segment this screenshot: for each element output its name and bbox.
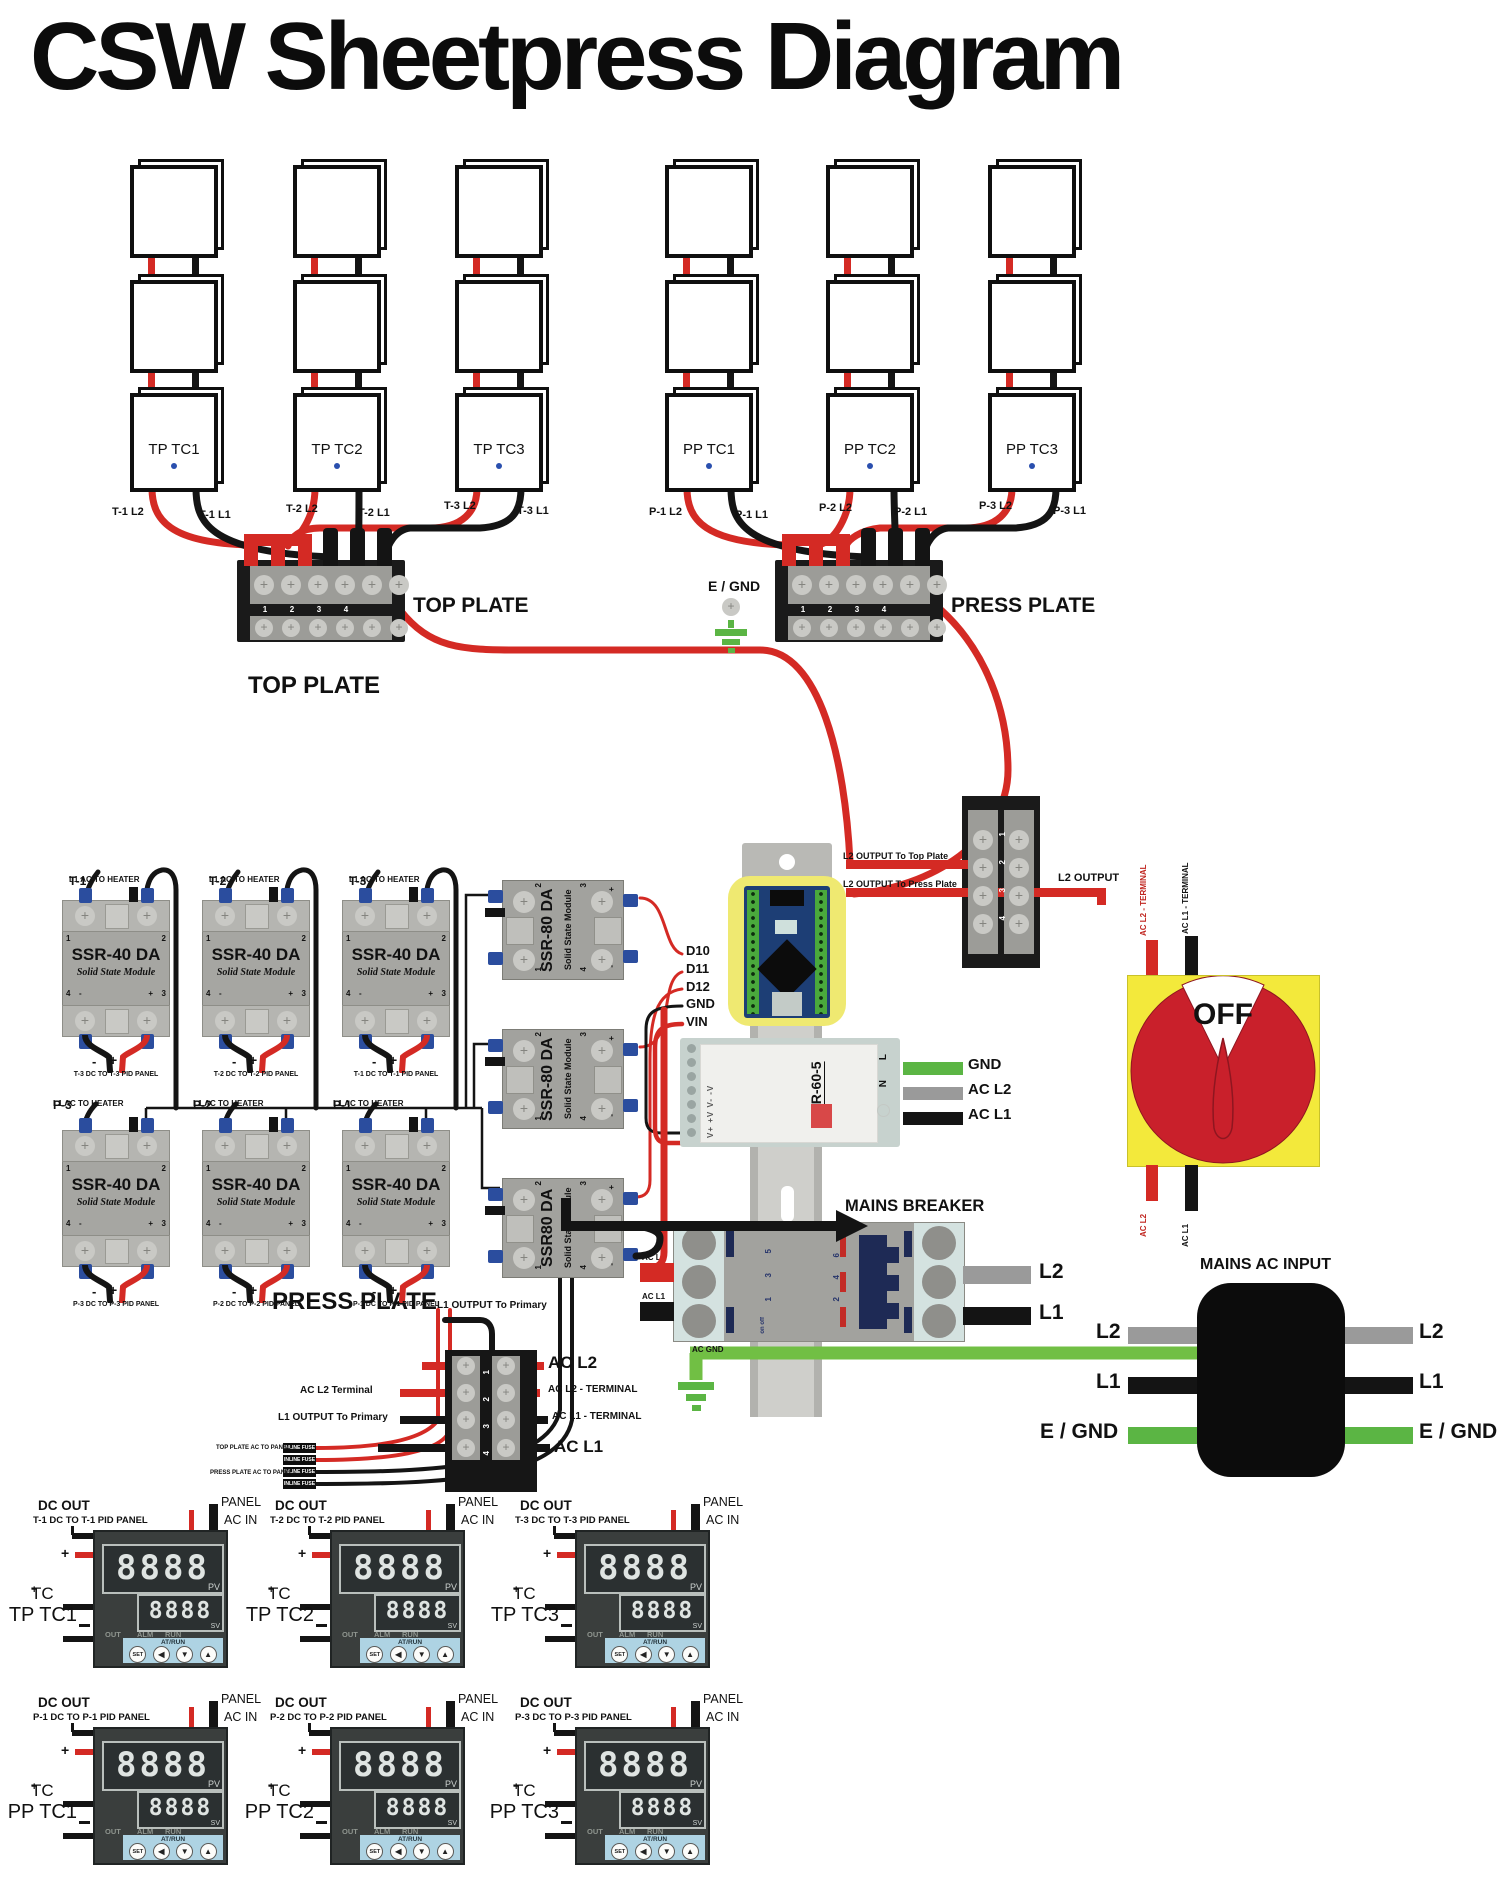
arrow-wire-layer <box>0 0 1500 1895</box>
diagram-canvas: CSW Sheetpress Diagram <box>0 0 1500 1895</box>
